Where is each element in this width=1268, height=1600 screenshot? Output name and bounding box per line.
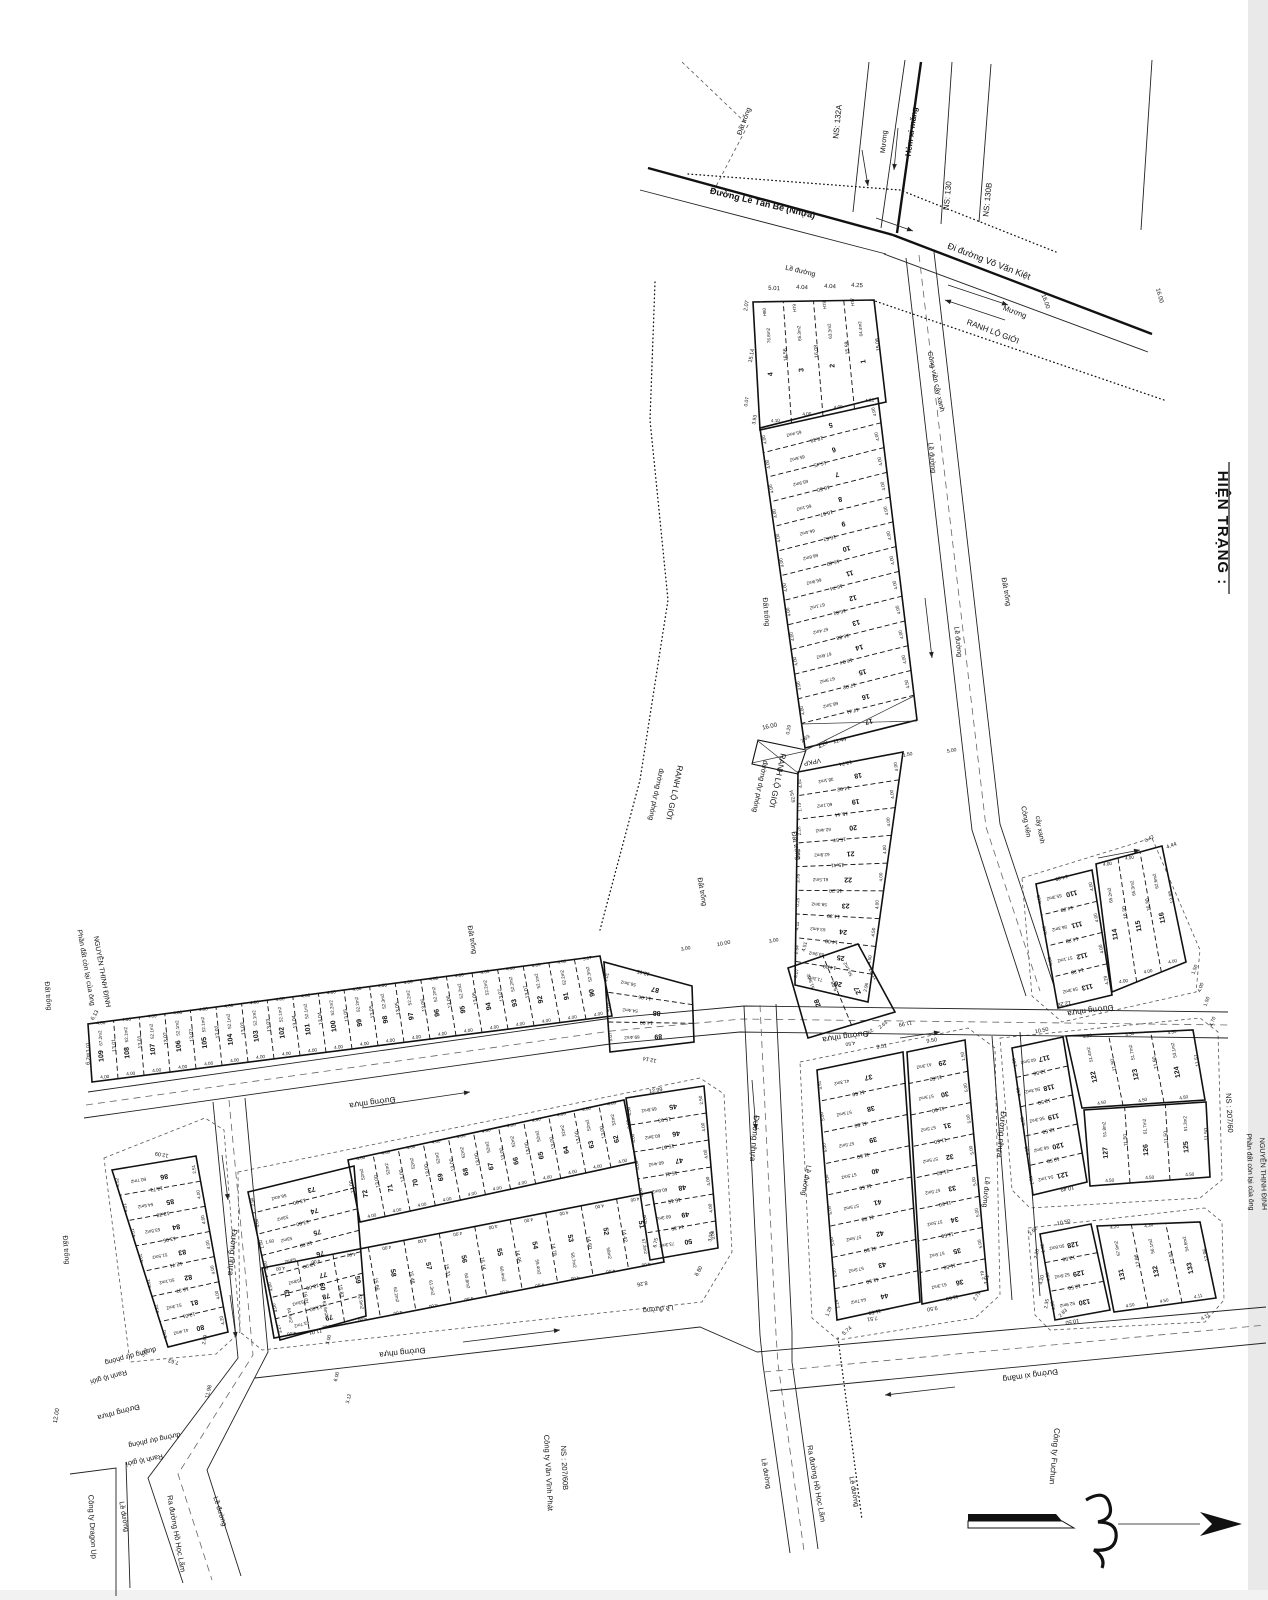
parcel-area: 62.9m2 [814,852,830,858]
parcel-number: 109 [98,1050,106,1062]
edge-width-label: 4.00 [250,999,260,1005]
parcel-number: 63 [588,1140,596,1149]
edge-width-label: 4.00 [204,1061,214,1067]
parcel-depth: 11.50 [1203,1128,1210,1141]
parcel-number: 59 [353,1275,361,1284]
parcel-number: 101 [304,1023,312,1036]
parcel-number: 52 [601,1227,609,1236]
parcel-number: 62 [613,1134,621,1143]
edge-width-label: 4.00 [122,1017,132,1023]
parcel-number: 95 [459,1005,467,1014]
edge-width-label: 4.00 [147,1013,157,1019]
edge-width-label: 4.00 [178,1064,188,1070]
parcel-number: 65 [537,1151,545,1160]
survey-map: 164.4m215.084.21263.3m215.594.00365.3m21… [0,0,1268,1600]
parcel-depth: 11.50 [1163,1131,1170,1144]
parcel-number: 91 [563,992,571,1001]
parcel-number: 69 [437,1173,445,1182]
parcel-number: 18 [853,771,862,779]
parcel-number: 25 [836,953,845,961]
parcel-number: 97 [408,1012,416,1021]
parcel-depth: 11.50 [1123,1133,1130,1146]
parcel-number: 94 [485,1002,493,1011]
edge-width-label: 4.00 [230,1057,240,1063]
parcel-number: 71 [387,1183,395,1192]
parcel-number: 103 [253,1030,261,1042]
parcel-number: 57 [424,1262,432,1271]
parcel-number: 105 [201,1036,209,1048]
parcel-number: 22 [844,876,852,883]
parcel-number: 2 [829,363,836,368]
parcel-number: 50 [684,1237,693,1245]
edge-width-label: 4.00 [224,1003,234,1009]
parcel-number: 68 [462,1167,470,1176]
edge-width-label: 0.25 [795,897,800,907]
parcel-number: 24 [839,927,847,935]
parcel-number: 106 [175,1040,183,1052]
parcel-number: 66 [512,1156,520,1165]
edge-width-label: 4.50 [1185,1172,1195,1178]
map-label: 4.25 [851,283,864,289]
map-background [0,0,1268,1600]
edge-width-label: 4.00 [173,1010,183,1016]
parcel-number: 46 [672,1129,681,1137]
parcel-number: 85 [165,1197,174,1205]
parcel-number: 99 [356,1018,364,1027]
parcel-number: 125 [1183,1141,1191,1153]
edge-width-label: 4.00 [874,900,879,910]
parcel-depth: 13.01 [85,1042,92,1055]
edge-width-label: 4.50 [871,927,877,937]
parcel-depth: 16.08 [813,345,820,359]
edge-width-label: 4.00 [885,817,891,827]
parcel-depth: 15.57 [833,836,847,843]
edge-width-label: 4.00 [878,872,883,881]
edge-width-label: 4.00 [126,1071,136,1077]
parcel-depth: 14.09 [640,1019,653,1025]
north-arrow-bar-filled [968,1514,1062,1521]
parcel-number: 45 [669,1102,678,1110]
parcel-number: 49 [681,1210,690,1218]
parcel-number: 55 [495,1248,503,1257]
parcel-number: 72 [362,1189,370,1198]
page-edge-bottom [0,1590,1268,1600]
parcel-number: 127 [1102,1147,1110,1159]
edge-width-label: 5.07 [608,1032,613,1042]
parcel-depth: 13.02 [188,1028,195,1042]
parcel-number: 93 [511,998,519,1007]
edge-width-label: 4.50 [1105,1177,1115,1183]
edge-width-label: 4.00 [256,1054,266,1060]
parcel-number: 107 [149,1043,157,1055]
map-label: 4.04 [824,284,837,290]
parcel-number: 21 [846,849,854,856]
map-label: 5.01 [768,286,781,292]
parcel-area: 59.3m2 [811,902,827,907]
title-block: HIỆN TRẠNG : [1214,462,1232,594]
parcel-number: 48 [678,1183,687,1191]
parcel-number: 92 [537,995,545,1004]
parcel-number: 86 [159,1172,168,1180]
parcel-depth: 15.41 [831,861,844,868]
parcel-depth: 15.20 [829,887,842,893]
map-label: H79 [792,303,798,312]
map-label: H77 [850,297,856,306]
parcel-number: 47 [675,1156,684,1164]
parcel-area: 51.7m2 [1142,1118,1148,1134]
parcel-number: 104 [227,1033,235,1045]
parcel-area: 61.5m2 [812,877,828,882]
parcel-depth: 15.59 [844,341,851,355]
parcel-area: 51.3m2 [1182,1115,1188,1131]
parcel-number: 53 [566,1234,574,1243]
cadastral-map-page: 164.4m215.084.21263.3m215.594.00365.3m21… [0,0,1268,1600]
parcel-number: 98 [382,1015,390,1024]
parcel-number: 90 [588,988,596,997]
parcel-number: 102 [278,1026,286,1039]
parcel-number: 126 [1143,1144,1151,1156]
parcel-number: 89 [654,1032,662,1039]
parcel-number: 84 [171,1222,180,1230]
edge-width-label: 4.50 [1145,1175,1155,1181]
parcel-area: 69.4m2 [624,1034,640,1040]
parcel-number: 3 [798,368,805,373]
edge-width-label: 4.00 [152,1067,162,1073]
edge-width-label: 4.01 [606,1002,612,1012]
parcel-number: 4 [767,372,774,376]
edge-width-label: 4.00 [100,1074,110,1080]
edge-width-label: 4.00 [882,844,888,854]
parcel-number: 64 [563,1145,571,1154]
parcel-number: 23 [842,902,850,909]
map-label: H78 [822,300,828,309]
parcel-number: 51 [637,1220,645,1229]
parcel-number: 67 [487,1162,495,1171]
edge-width-label: 4.00 [96,1020,106,1026]
parcel-number: 20 [849,823,858,831]
edge-width-label: 4.11 [794,921,800,930]
page-edge-right [1248,0,1268,1600]
parcel-number: 19 [851,797,860,805]
parcel-depth: 13.01 [137,1035,144,1049]
parcel-number: 70 [412,1178,420,1187]
parcel-depth: 16.56 [783,348,790,361]
parcel-number: 61 [282,1289,290,1298]
parcel-number: 88 [652,1009,660,1017]
parcel-number: 56 [459,1255,467,1264]
map-label: H80 [762,307,768,316]
parcel-number: 96 [433,1008,441,1017]
parcel-depth: 13.02 [163,1032,170,1046]
parcel-number: 60 [318,1282,326,1291]
parcel-depth: 14.39 [827,912,840,919]
edge-width-label: 3.76 [796,874,801,883]
parcel-depth: 13.01 [111,1039,118,1053]
parcel-area: 76.8m2 [766,327,772,343]
edge-width-label: 4.00 [199,1006,209,1012]
parcel-number: 54 [530,1241,538,1250]
parcel-number: 58 [389,1269,397,1278]
parcel-number: 108 [124,1047,132,1059]
map-label: 4.04 [796,285,809,291]
